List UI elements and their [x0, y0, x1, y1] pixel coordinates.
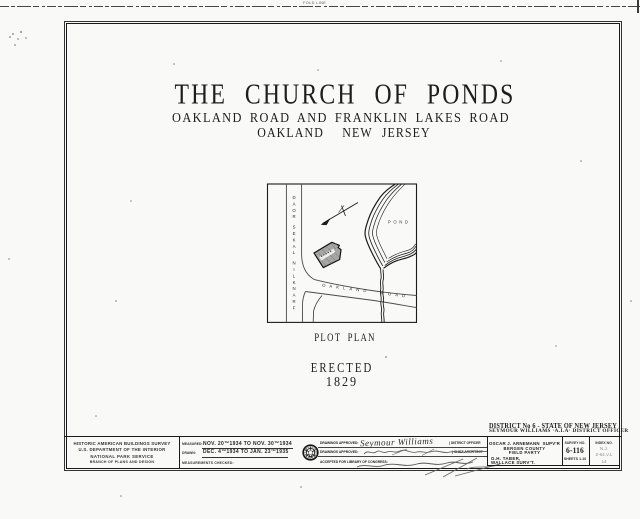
svg-text:L: L: [293, 250, 296, 255]
svg-text:A: A: [293, 244, 296, 249]
svg-text:E: E: [293, 231, 296, 236]
svg-text:S: S: [293, 225, 296, 230]
svg-text:POND: POND: [388, 220, 411, 225]
svg-text:O: O: [292, 208, 296, 213]
svg-text:R: R: [292, 299, 295, 304]
svg-text:A: A: [293, 293, 296, 298]
svg-text:D: D: [292, 195, 295, 200]
svg-text:A: A: [293, 201, 296, 206]
svg-text:L: L: [293, 273, 296, 278]
svg-text:OAKLAND ROAD: OAKLAND ROAD: [322, 283, 410, 299]
svg-text:I: I: [293, 267, 294, 272]
svg-text:K: K: [293, 280, 296, 285]
svg-text:N: N: [292, 261, 295, 266]
svg-text:K: K: [293, 237, 296, 242]
svg-text:F: F: [293, 305, 296, 310]
svg-text:N: N: [292, 286, 295, 291]
svg-text:R: R: [292, 214, 295, 219]
